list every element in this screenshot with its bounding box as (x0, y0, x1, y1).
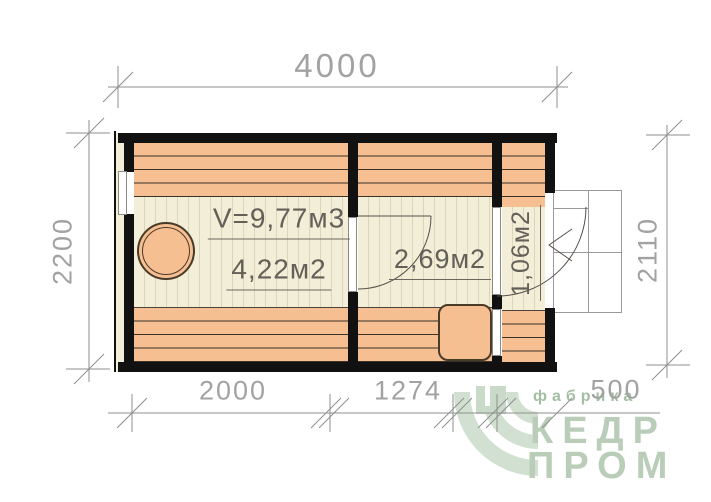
wall-bottom (118, 362, 557, 372)
steam-room-top-bench (134, 143, 348, 198)
bench-seat (438, 304, 492, 361)
wall-top (118, 133, 557, 143)
entrance-area-label: 1,06м2 (507, 205, 541, 301)
platform-step-edge (553, 208, 589, 209)
stove-inner-ring (142, 227, 190, 275)
wash-room-top-bench (358, 143, 492, 198)
partition2-stub (492, 295, 502, 309)
partition2-upper (492, 143, 502, 207)
left-wall-siding (116, 133, 124, 372)
dim-bottom-value-2: 1274 (374, 376, 442, 407)
entrance-bottom-bench (502, 310, 545, 363)
dim-right-value: 2110 (633, 217, 664, 283)
door2-jamb (492, 207, 501, 295)
partition1-lower (348, 292, 358, 362)
wash-room-area-label: 2,69м2 (389, 244, 491, 280)
dim-top-value: 4000 (294, 47, 379, 85)
wall-right-upper-segment (545, 133, 555, 193)
partition2-bottom (492, 356, 502, 362)
outer-contour-left (114, 131, 116, 372)
logo-word-kedr: КЕДР (530, 415, 667, 447)
steam-room-volume-label: V=9,77м3 (208, 203, 350, 240)
platform-divider-h (553, 252, 622, 253)
floor-plan-canvas: фабрика КЕДР ПРОМ (0, 0, 711, 502)
dim-left-value: 2200 (48, 217, 79, 285)
partition2-lower-panel (492, 309, 501, 356)
stove-icon (137, 222, 195, 280)
dim-bottom-value-3: 500 (590, 375, 641, 406)
wall-right-lower-segment (545, 308, 555, 372)
wall-left-upper-segment (124, 133, 134, 172)
wall-left-lower-segment (124, 214, 134, 372)
logo-word-prom: ПРОМ (527, 450, 676, 482)
dim-bottom-value-1: 2000 (199, 376, 267, 407)
steam-room-bottom-bench (134, 307, 348, 363)
steam-room-area-label: 4,22м2 (226, 254, 331, 291)
entrance-top-bench (502, 143, 545, 208)
window-left-wall (118, 171, 127, 215)
